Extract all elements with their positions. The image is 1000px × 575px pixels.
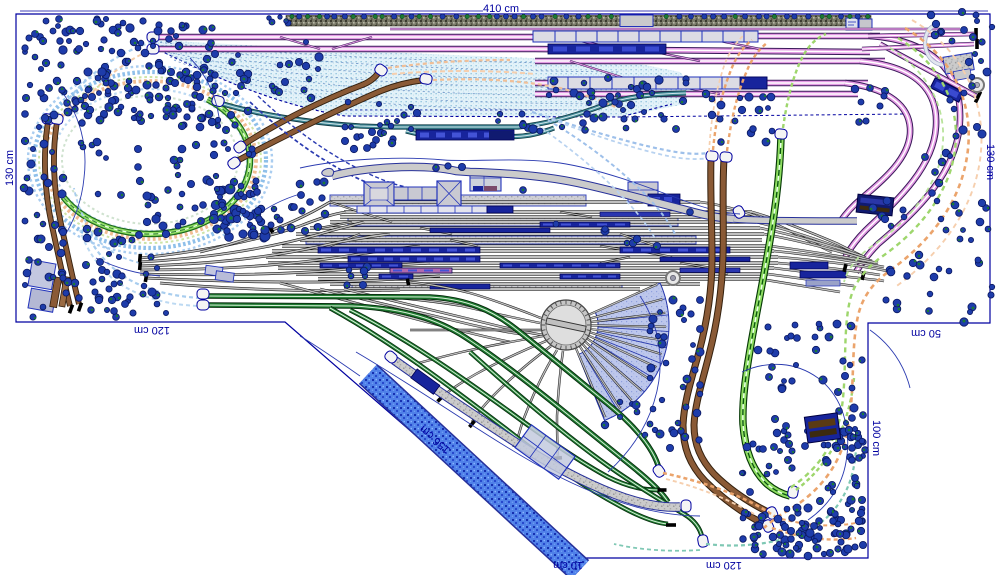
svg-text:120 cm: 120 cm — [134, 324, 170, 336]
svg-text:100 cm: 100 cm — [870, 420, 882, 456]
svg-text:130 cm: 130 cm — [4, 150, 16, 186]
svg-text:10 cm: 10 cm — [553, 559, 583, 571]
svg-text:410 cm: 410 cm — [483, 3, 519, 15]
svg-text:120 cm: 120 cm — [706, 559, 742, 571]
svg-text:130 cm: 130 cm — [984, 144, 996, 180]
svg-text:50 cm: 50 cm — [911, 327, 941, 339]
